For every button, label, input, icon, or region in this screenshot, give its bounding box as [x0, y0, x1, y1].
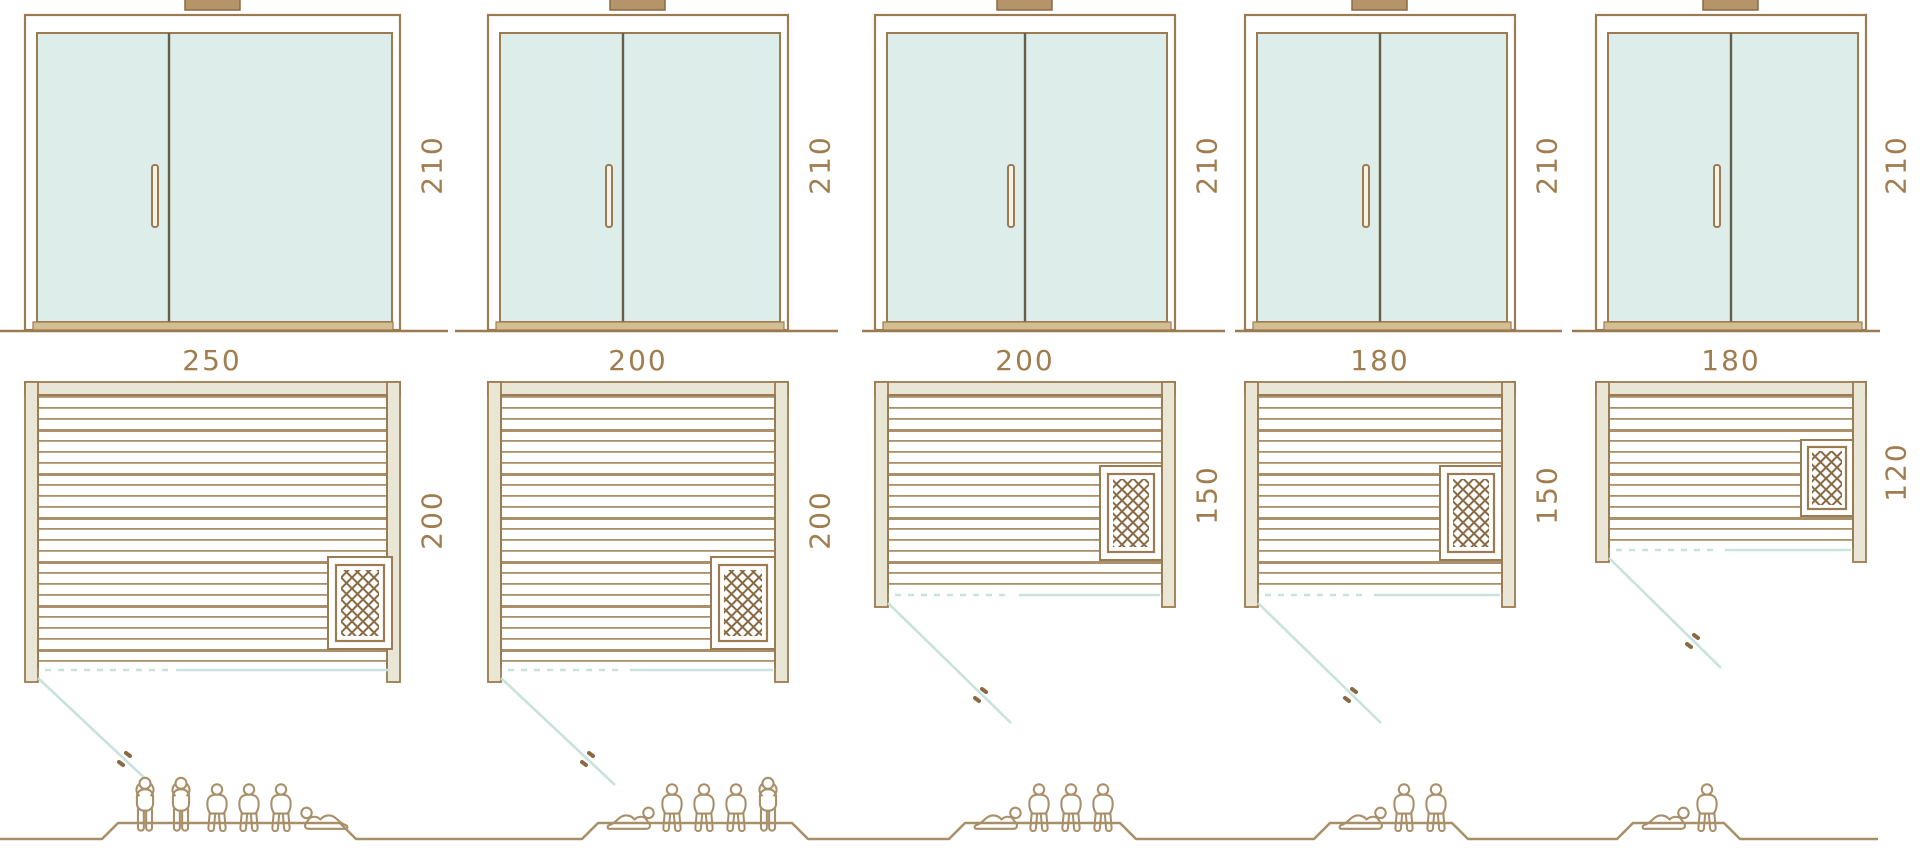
width-dimension: 250	[182, 344, 241, 377]
diagram-canvas: 210 250 200	[0, 0, 1920, 856]
plan-back-wall	[1596, 382, 1866, 395]
roof-vent-icon	[1352, 0, 1407, 10]
threshold	[883, 322, 1171, 330]
heater-icon	[1100, 466, 1162, 560]
sauna-column-4: 210 180 150	[1245, 0, 1564, 831]
roof-vent-icon	[610, 0, 665, 10]
plan-left-wall	[25, 382, 38, 682]
plan-back-wall	[25, 382, 400, 395]
door-handle-icon	[1363, 165, 1369, 227]
door-swing	[1258, 595, 1500, 723]
plan-right-wall	[775, 382, 788, 682]
sauna-column-3: 210 200 150	[875, 0, 1224, 831]
glass-front	[500, 33, 780, 322]
front-elevation-2: 210	[488, 0, 837, 330]
glass-front	[37, 33, 392, 322]
height-dimension: 210	[1880, 135, 1913, 194]
floor-plan-2: 200 200	[488, 344, 837, 785]
floor-plan-5: 180 120	[1596, 344, 1913, 668]
door-handle-icon	[1714, 165, 1720, 227]
height-dimension: 210	[1191, 135, 1224, 194]
sauna-comparison-diagram: 210 250 200	[0, 0, 1920, 856]
roof-vent-icon	[185, 0, 240, 10]
door-swing	[501, 670, 773, 785]
front-elevation-1: 210	[25, 0, 449, 330]
capacity-group-5	[1643, 784, 1717, 831]
heater-icon	[711, 557, 775, 649]
threshold	[33, 322, 393, 330]
door-swing-line	[888, 603, 1011, 723]
front-elevation-3: 210	[875, 0, 1224, 330]
door-swing-line	[501, 678, 615, 785]
sauna-column-5: 210 180 120	[1596, 0, 1913, 831]
plan-back-wall	[1245, 382, 1515, 395]
heater-icon	[1801, 440, 1853, 516]
front-elevation-4: 210	[1245, 0, 1564, 330]
depth-dimension: 200	[416, 490, 449, 549]
height-dimension: 210	[416, 135, 449, 194]
sauna-column-2: 210 200 200	[488, 0, 837, 831]
floor-plan-3: 200 150	[875, 344, 1224, 723]
capacity-ground-line	[0, 823, 1878, 839]
door-swing	[38, 670, 390, 785]
door-handle-icon	[152, 165, 158, 227]
sauna-column-1: 210 250 200	[25, 0, 449, 831]
depth-dimension: 200	[804, 490, 837, 549]
roof-vent-icon	[997, 0, 1052, 10]
plan-right-wall	[1502, 382, 1515, 607]
glass-front	[887, 33, 1167, 322]
plan-right-wall	[1853, 382, 1866, 562]
glass-front	[1608, 33, 1858, 322]
door-handle-icon	[606, 165, 612, 227]
threshold	[1604, 322, 1862, 330]
plan-right-wall	[1162, 382, 1175, 607]
door-swing-line	[1609, 558, 1721, 668]
width-dimension: 200	[995, 344, 1054, 377]
depth-dimension: 150	[1191, 465, 1224, 524]
height-dimension: 210	[1531, 135, 1564, 194]
width-dimension: 200	[608, 344, 667, 377]
width-dimension: 180	[1701, 344, 1760, 377]
heater-icon	[1440, 466, 1502, 560]
heater-icon	[328, 557, 392, 649]
roof-vent-icon	[1703, 0, 1758, 10]
depth-dimension: 150	[1531, 465, 1564, 524]
floor-plan-1: 250 200	[25, 344, 449, 785]
front-elevation-5: 210	[1596, 0, 1913, 330]
door-handle-icon	[1008, 165, 1014, 227]
plan-left-wall	[1245, 382, 1258, 607]
door-swing-line	[38, 678, 152, 785]
plan-left-wall	[875, 382, 888, 607]
capacity-group-3	[975, 784, 1113, 831]
depth-dimension: 120	[1880, 442, 1913, 501]
glass-front	[1257, 33, 1507, 322]
plan-left-wall	[488, 382, 501, 682]
floor-plan-4: 180 150	[1245, 344, 1564, 723]
threshold	[1253, 322, 1511, 330]
door-swing-line	[1258, 603, 1381, 723]
plan-left-wall	[1596, 382, 1609, 562]
plan-back-wall	[488, 382, 788, 395]
height-dimension: 210	[804, 135, 837, 194]
door-swing	[888, 595, 1160, 723]
plan-back-wall	[875, 382, 1175, 395]
door-swing	[1609, 550, 1851, 668]
width-dimension: 180	[1350, 344, 1409, 377]
capacity-group-4	[1340, 784, 1446, 831]
threshold	[496, 322, 784, 330]
